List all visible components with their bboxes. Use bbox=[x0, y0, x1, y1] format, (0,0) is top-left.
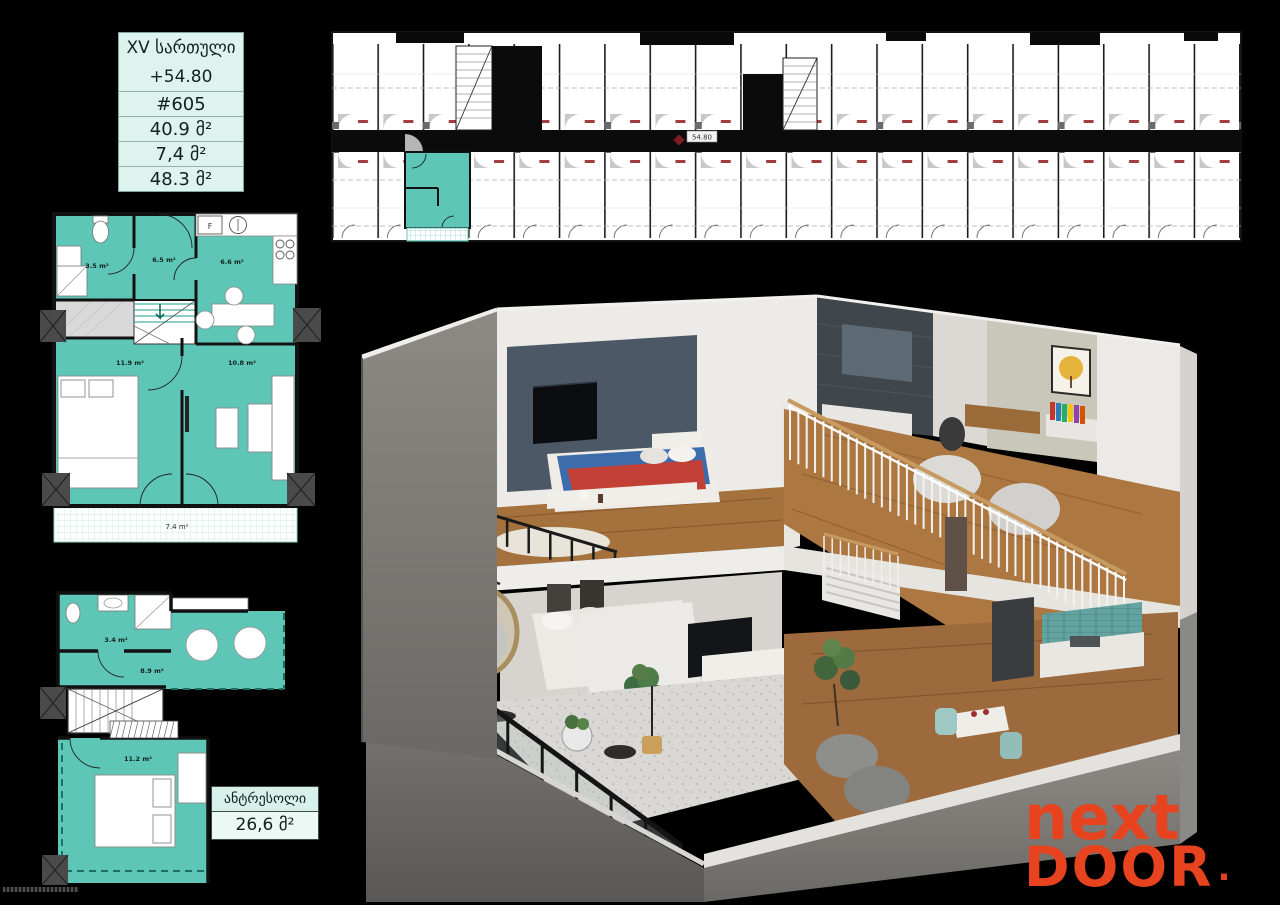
mezz-pouf-2 bbox=[234, 627, 266, 659]
mezzanine-label-box: ანტრესოლი 26,6 მ² bbox=[211, 786, 319, 840]
left-outer-wall-3d bbox=[362, 310, 497, 759]
logo-dot: . bbox=[1218, 849, 1233, 889]
strip-elevation-text: 54.80 bbox=[692, 134, 712, 142]
svg-text:11.9 m²: 11.9 m² bbox=[116, 359, 144, 367]
bedroom-furniture bbox=[58, 376, 138, 488]
desk-chair-3d bbox=[939, 417, 965, 451]
balcony-plan: 7.4 m² bbox=[54, 506, 297, 542]
mezz-pouf-1 bbox=[186, 629, 218, 661]
mezzanine-area: 26,6 მ² bbox=[212, 812, 318, 839]
area-balcony: 7,4 მ² bbox=[119, 141, 243, 166]
brochure-page: { "palette": { "background": "#000000", … bbox=[0, 0, 1280, 905]
level1-unit-plan: 7.4 m² bbox=[40, 208, 321, 546]
area-main: 40.9 მ² bbox=[119, 116, 243, 141]
stair-core-left bbox=[456, 46, 542, 130]
fridge-label: F bbox=[208, 222, 213, 231]
floor-lamp bbox=[642, 736, 662, 754]
floor-label: XV სართული bbox=[119, 33, 243, 62]
building-floor-plan: 54.80 bbox=[330, 30, 1243, 244]
mezzanine-plan: 3.4 m² 8.9 m² 11.2 m² bbox=[40, 583, 310, 893]
svg-text:11.2 m²: 11.2 m² bbox=[124, 755, 152, 763]
mezzanine-title: ანტრესოლი bbox=[212, 787, 318, 812]
svg-text:3.5 m²: 3.5 m² bbox=[85, 262, 109, 270]
elevation-label: +54.80 bbox=[119, 62, 243, 91]
svg-text:8.9 m²: 8.9 m² bbox=[140, 667, 164, 675]
fridge-3d bbox=[992, 597, 1034, 682]
logo-line2: DOOR. bbox=[1024, 844, 1234, 890]
unit-info-table: XV სართული +54.80 #605 40.9 მ² 7,4 მ² 48… bbox=[118, 32, 244, 192]
fine-print-watermark bbox=[3, 887, 79, 892]
stairs-plan bbox=[134, 300, 196, 344]
area-total: 48.3 მ² bbox=[119, 166, 243, 191]
interior-door-3d bbox=[945, 517, 967, 591]
nextdoor-logo: next DOOR. bbox=[1024, 792, 1234, 890]
svg-text:6.5 m²: 6.5 m² bbox=[152, 256, 176, 264]
balcony-area-label: 7.4 m² bbox=[166, 523, 189, 531]
svg-text:3.4 m²: 3.4 m² bbox=[104, 636, 128, 644]
hatch-strip bbox=[110, 721, 178, 738]
dining-chair-1 bbox=[935, 708, 957, 735]
svg-text:6.6 m²: 6.6 m² bbox=[220, 258, 244, 266]
dining-chair-2 bbox=[1000, 732, 1022, 759]
svg-text:10.8 m²: 10.8 m² bbox=[228, 359, 256, 367]
unit-number: #605 bbox=[119, 91, 243, 116]
corridor bbox=[332, 130, 1241, 152]
